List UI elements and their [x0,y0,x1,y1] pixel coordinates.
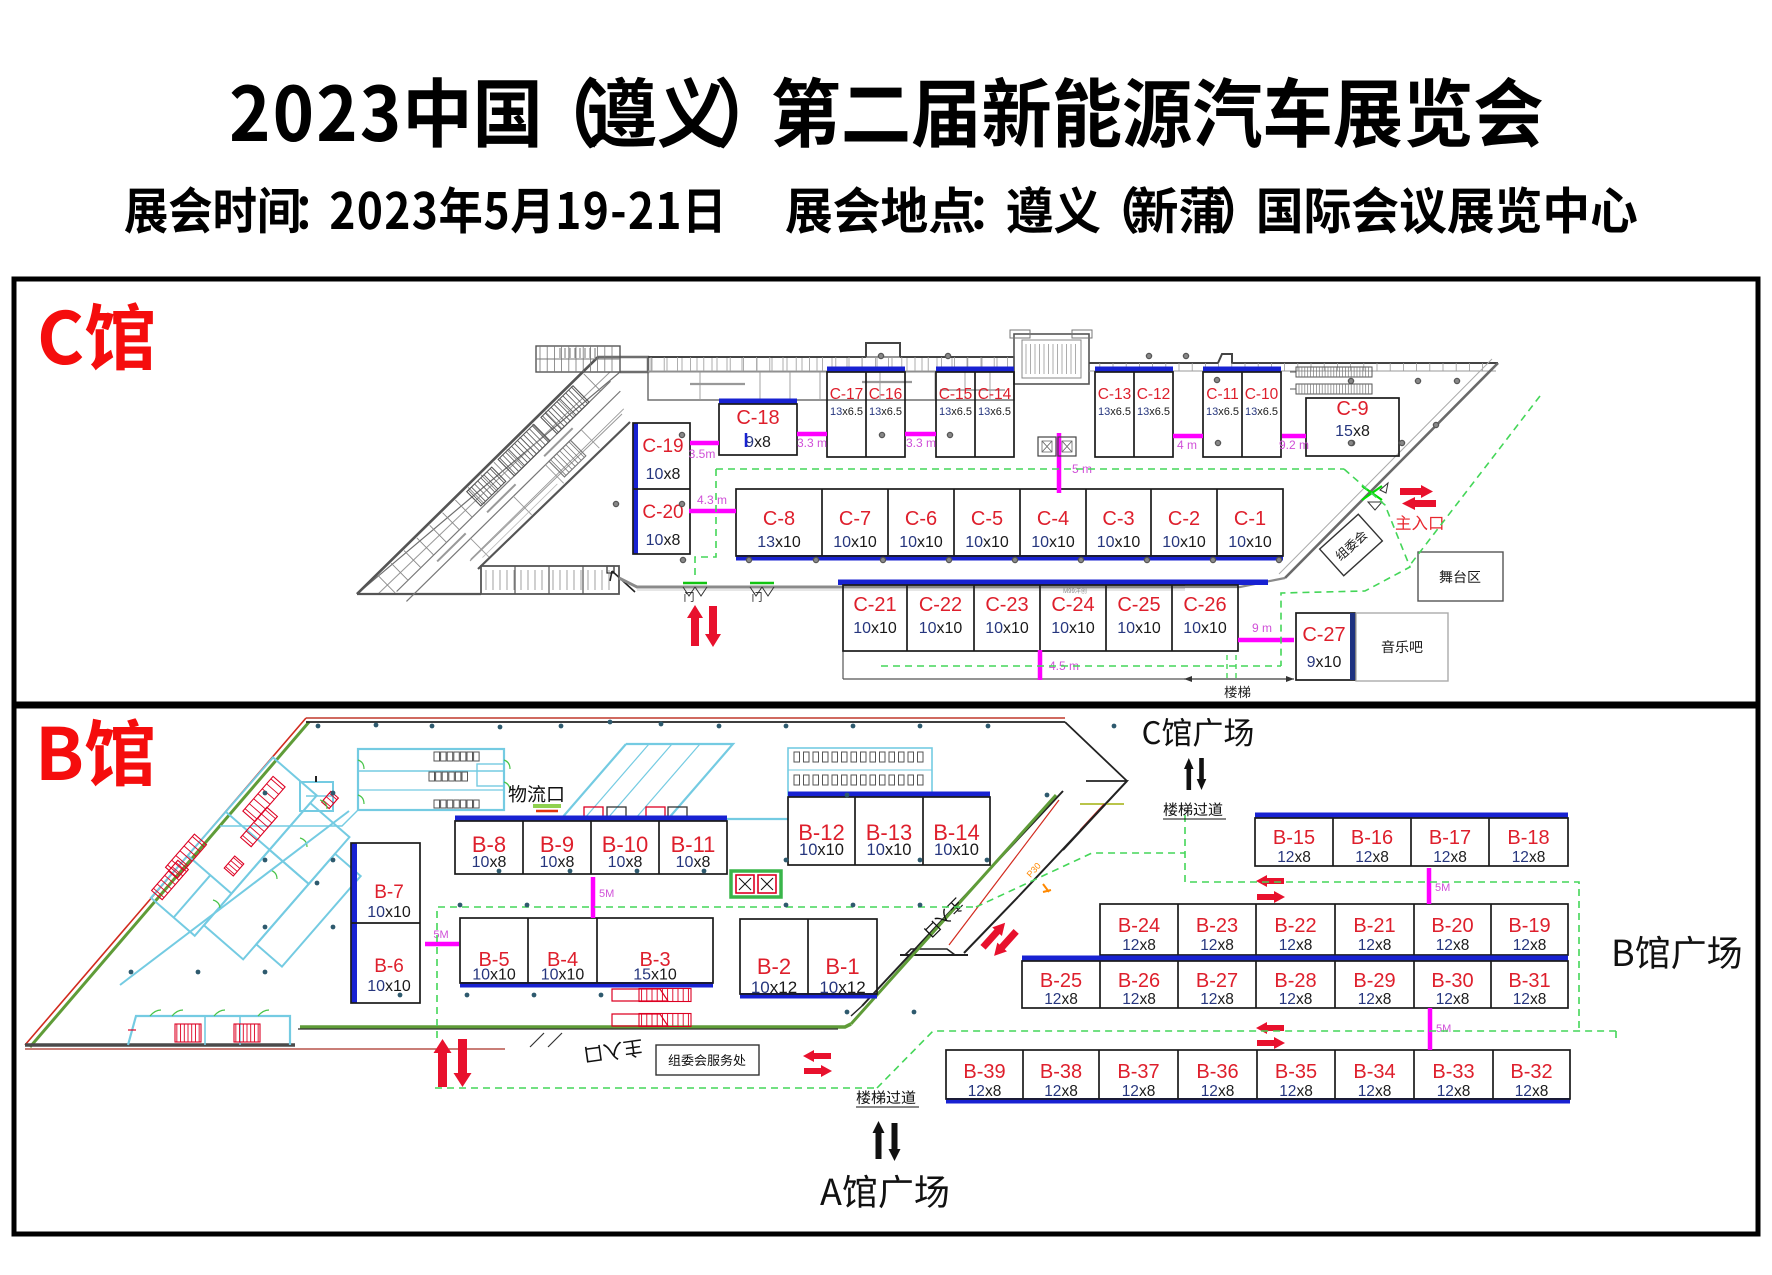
svg-text:B-37: B-37 [1117,1061,1159,1083]
svg-text:C-8: C-8 [763,508,795,530]
svg-text:10x10: 10x10 [853,620,897,637]
svg-text:B-31: B-31 [1508,970,1550,992]
svg-text:B-17: B-17 [1429,827,1471,849]
svg-text:C-27: C-27 [1302,624,1345,646]
svg-text:12x8: 12x8 [1200,937,1234,954]
svg-text:B-33: B-33 [1432,1061,1474,1083]
svg-text:12x8: 12x8 [1512,849,1546,866]
svg-text:B-1: B-1 [825,954,859,979]
svg-text:9x8: 9x8 [745,434,771,451]
svg-text:C-16: C-16 [869,386,903,403]
svg-text:10x10: 10x10 [367,978,411,995]
svg-text:15x8: 15x8 [1335,423,1370,440]
svg-text:C-6: C-6 [905,508,937,530]
svg-text:B-19: B-19 [1508,915,1550,937]
svg-text:12x8: 12x8 [968,1083,1002,1100]
svg-text:12x8: 12x8 [1279,991,1313,1008]
svg-text:5M: 5M [599,888,614,900]
svg-text:13x6.5: 13x6.5 [1206,406,1239,418]
svg-text:12x8: 12x8 [1433,849,1467,866]
svg-text:12x8: 12x8 [1436,991,1470,1008]
svg-text:10x10: 10x10 [985,620,1029,637]
svg-text:B-20: B-20 [1431,915,1473,937]
svg-text:C-11: C-11 [1206,386,1238,403]
svg-text:12x8: 12x8 [1513,937,1547,954]
svg-text:13x6.5: 13x6.5 [869,406,902,418]
svg-text:10x10: 10x10 [899,534,943,551]
svg-text:C-26: C-26 [1183,594,1226,616]
svg-text:10x8: 10x8 [646,532,681,549]
svg-text:13x6.5: 13x6.5 [1245,406,1278,418]
svg-text:12x8: 12x8 [1355,849,1389,866]
svg-text:12x8: 12x8 [1200,991,1234,1008]
svg-text:B-34: B-34 [1353,1061,1395,1083]
svg-text:12x8: 12x8 [1436,937,1470,954]
svg-text:10x10: 10x10 [1031,534,1075,551]
svg-text:10x10: 10x10 [1117,620,1161,637]
svg-text:10x10: 10x10 [541,967,585,984]
svg-text:10x10: 10x10 [833,534,877,551]
svg-text:B-16: B-16 [1351,827,1393,849]
svg-text:10x8: 10x8 [540,854,575,871]
svg-text:12x8: 12x8 [1044,1083,1078,1100]
svg-text:5M: 5M [1435,882,1450,894]
svg-text:B-30: B-30 [1431,970,1473,992]
svg-text:C-18: C-18 [736,407,779,429]
svg-text:C-13: C-13 [1098,386,1132,403]
svg-text:C-3: C-3 [1102,508,1134,530]
svg-text:10x10: 10x10 [1097,534,1141,551]
svg-text:C-4: C-4 [1037,508,1069,530]
svg-text:10x10: 10x10 [1051,620,1095,637]
svg-text:B-22: B-22 [1274,915,1316,937]
svg-text:10x8: 10x8 [472,854,507,871]
svg-text:C-20: C-20 [642,502,683,523]
svg-text:12x8: 12x8 [1044,991,1078,1008]
svg-text:B-21: B-21 [1353,915,1395,937]
svg-text:10x10: 10x10 [919,620,963,637]
svg-text:B-29: B-29 [1353,970,1395,992]
svg-text:12x8: 12x8 [1358,937,1392,954]
svg-text:3.3 m: 3.3 m [797,436,827,450]
svg-text:C-2: C-2 [1168,508,1200,530]
svg-text:12x8: 12x8 [1277,849,1311,866]
svg-text:13x6.5: 13x6.5 [939,406,972,418]
svg-text:C-5: C-5 [971,508,1003,530]
svg-text:C-9: C-9 [1336,398,1368,420]
svg-text:5M: 5M [1436,1023,1451,1035]
svg-text:B-28: B-28 [1274,970,1316,992]
svg-text:B-35: B-35 [1275,1061,1317,1083]
svg-text:12x8: 12x8 [1358,991,1392,1008]
svg-text:B-24: B-24 [1118,915,1160,937]
svg-text:13x6.5: 13x6.5 [978,406,1011,418]
svg-text:B-23: B-23 [1196,915,1238,937]
svg-text:C-10: C-10 [1245,386,1279,403]
svg-text:12x8: 12x8 [1437,1083,1471,1100]
svg-text:B-6: B-6 [374,956,404,977]
svg-text:12x8: 12x8 [1122,991,1156,1008]
svg-text:12x8: 12x8 [1513,991,1547,1008]
svg-text:B-25: B-25 [1040,970,1082,992]
svg-text:10x10: 10x10 [1162,534,1206,551]
svg-text:10x10: 10x10 [799,841,844,859]
svg-text:C-7: C-7 [839,508,871,530]
svg-text:13x6.5: 13x6.5 [830,406,863,418]
svg-text:10x10: 10x10 [367,904,411,921]
svg-text:13x6.5: 13x6.5 [1098,406,1131,418]
svg-text:B-18: B-18 [1507,827,1549,849]
svg-text:B-15: B-15 [1273,827,1315,849]
svg-text:9.2 m: 9.2 m [1279,438,1309,452]
svg-text:10x8: 10x8 [646,466,681,483]
svg-text:12x8: 12x8 [1515,1083,1549,1100]
svg-text:12x8: 12x8 [1279,937,1313,954]
svg-text:C-17: C-17 [830,386,864,403]
svg-text:10x10: 10x10 [867,841,912,859]
svg-text:C-19: C-19 [642,436,683,457]
svg-text:3.3 m: 3.3 m [906,436,936,450]
svg-text:10x10: 10x10 [1183,620,1227,637]
svg-text:C-22: C-22 [919,594,962,616]
svg-text:B-7: B-7 [374,882,404,903]
svg-text:C-15: C-15 [939,386,973,403]
svg-text:10x10: 10x10 [934,841,979,859]
svg-text:B-39: B-39 [963,1061,1005,1083]
svg-text:C-12: C-12 [1137,386,1171,403]
svg-text:C-14: C-14 [978,386,1012,403]
svg-text:B-36: B-36 [1196,1061,1238,1083]
svg-text:4.3 m: 4.3 m [697,493,727,507]
svg-text:B-27: B-27 [1196,970,1238,992]
svg-text:C-21: C-21 [853,594,896,616]
svg-text:C-25: C-25 [1117,594,1160,616]
svg-text:12x8: 12x8 [1358,1083,1392,1100]
svg-text:C-23: C-23 [985,594,1028,616]
svg-text:9 m: 9 m [1252,621,1272,635]
svg-text:B-26: B-26 [1118,970,1160,992]
svg-text:12x8: 12x8 [1201,1083,1235,1100]
svg-text:9x10: 9x10 [1307,654,1342,671]
svg-text:13x6.5: 13x6.5 [1137,406,1170,418]
svg-text:15x10: 15x10 [633,967,677,984]
svg-text:10x10: 10x10 [965,534,1009,551]
svg-text:10x8: 10x8 [676,854,711,871]
svg-text:B-38: B-38 [1040,1061,1082,1083]
svg-text:10x12: 10x12 [751,978,797,997]
svg-text:C-24: C-24 [1051,594,1094,616]
svg-text:4 m: 4 m [1177,438,1197,452]
svg-text:5M: 5M [433,929,448,941]
svg-text:10x10: 10x10 [472,967,516,984]
svg-text:C-1: C-1 [1234,508,1266,530]
svg-text:10x12: 10x12 [819,978,865,997]
svg-text:12x8: 12x8 [1122,937,1156,954]
svg-text:3.5m: 3.5m [689,447,716,461]
svg-text:M99洋创: M99洋创 [1063,587,1087,595]
svg-text:10x10: 10x10 [1228,534,1272,551]
svg-text:12x8: 12x8 [1279,1083,1313,1100]
svg-text:B-32: B-32 [1510,1061,1552,1083]
svg-text:13x10: 13x10 [757,534,801,551]
svg-text:12x8: 12x8 [1122,1083,1156,1100]
svg-text:10x8: 10x8 [608,854,643,871]
svg-text:B-2: B-2 [757,954,791,979]
